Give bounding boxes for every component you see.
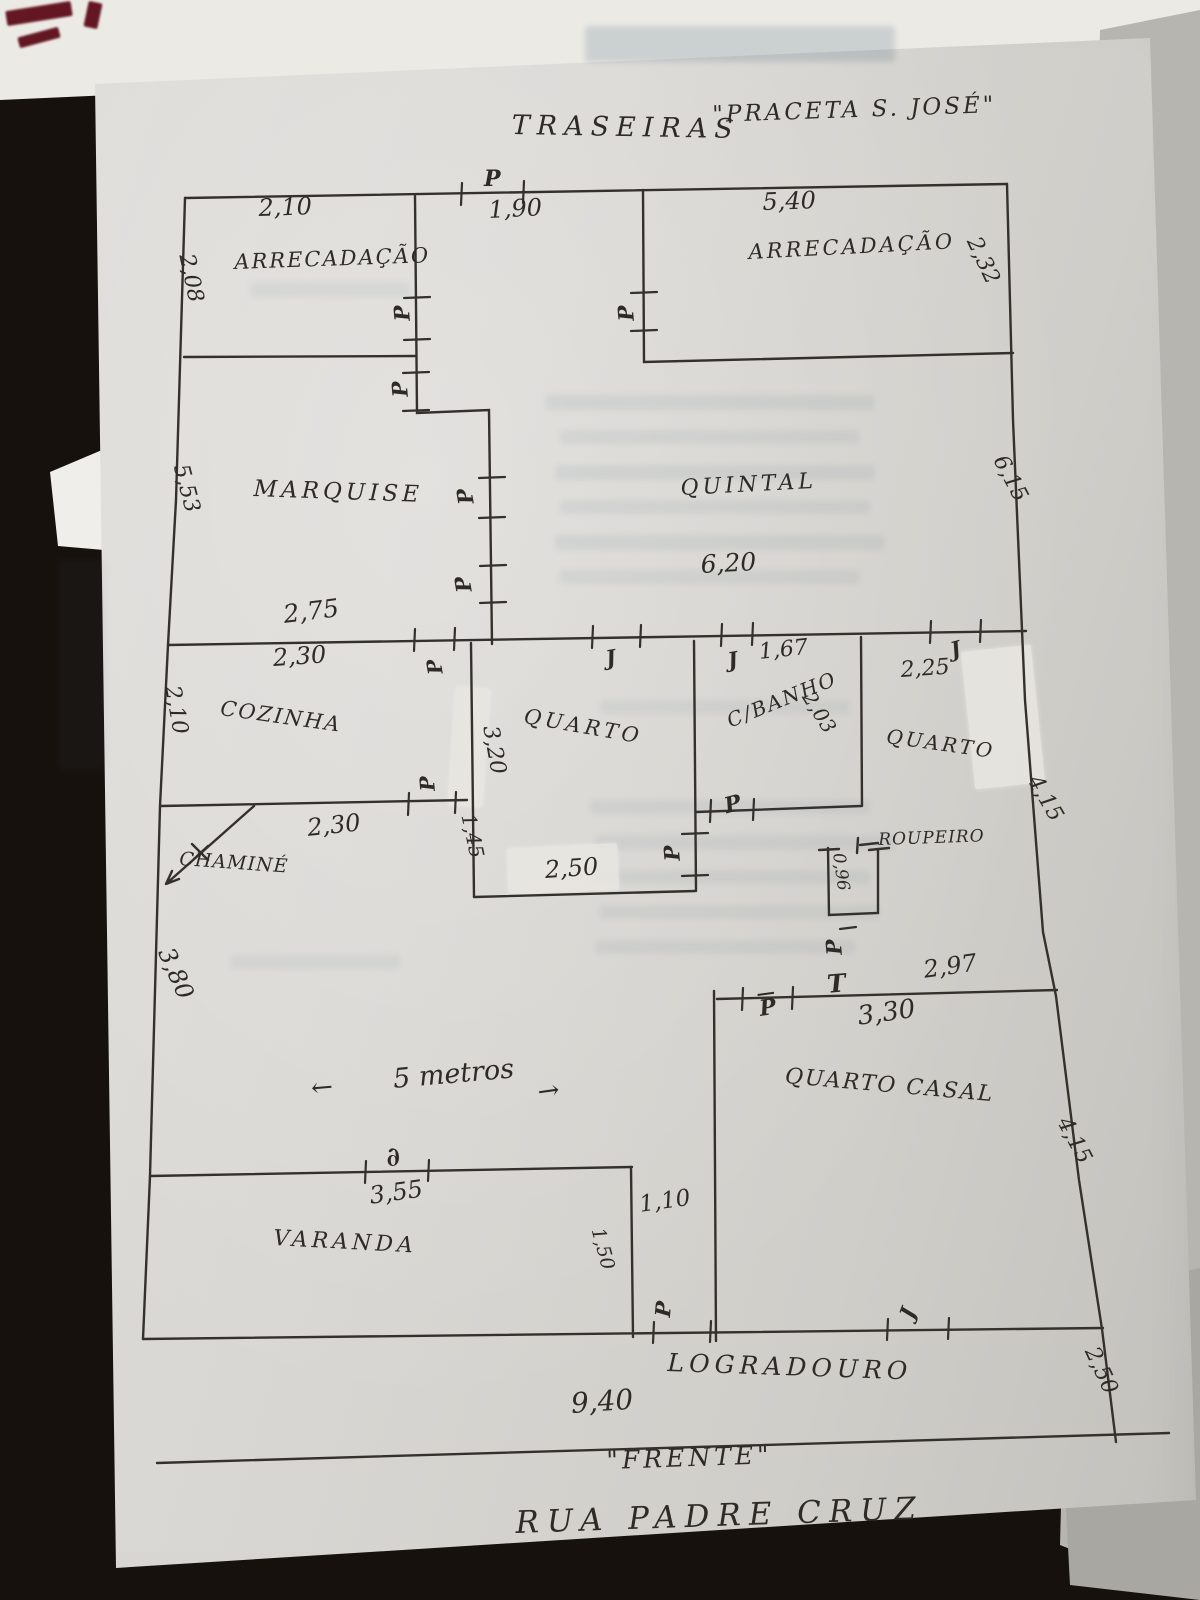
back-street-label: TRASEIRAS bbox=[512, 112, 740, 143]
tee-marker-vestibule: T bbox=[826, 970, 847, 997]
door-marker-gate: P bbox=[484, 168, 501, 190]
left-lot-line bbox=[143, 198, 185, 1339]
dim-marquise-width: 2,75 bbox=[282, 595, 340, 627]
photo-of-floor-plan: { "annotations": { "back_label": "TRASEI… bbox=[0, 0, 1200, 1600]
room-label-marquise: MARQUISE bbox=[253, 478, 423, 507]
door-marker-cozinha-bottom: P bbox=[417, 775, 438, 792]
dim-cozinha-width: 2,30 bbox=[272, 642, 327, 670]
arrecadacao-left-bottom-wall bbox=[184, 356, 415, 357]
dim-quintal-width: 6,20 bbox=[700, 549, 757, 577]
varanda-right-wall bbox=[631, 1167, 633, 1337]
scale-arrow-right-icon: → bbox=[536, 1077, 561, 1106]
door-marker-arr-left-2: P bbox=[389, 380, 411, 398]
door-marker-hall: P bbox=[758, 996, 777, 1020]
room-label-roupeiro: ROUPEIRO bbox=[878, 828, 985, 849]
cozinha-bottom-wall bbox=[161, 800, 467, 806]
banho-right-wall bbox=[861, 637, 862, 806]
quarto-bottom-wall bbox=[474, 891, 695, 897]
dim-arrecadacao-right-width: 5,40 bbox=[762, 188, 816, 214]
door-marker-vestibule: P bbox=[823, 938, 845, 956]
casal-left-wall bbox=[714, 991, 716, 1341]
door-marker-arr-right: P bbox=[615, 304, 637, 322]
house-front-wall bbox=[143, 1328, 1103, 1339]
dim-gate-width: 1,90 bbox=[488, 195, 543, 222]
door-marker-arr-left-1: P bbox=[391, 304, 413, 322]
dim-front-width: 9,40 bbox=[570, 1386, 634, 1418]
dim-banho-width: 1,67 bbox=[758, 637, 809, 664]
dim-sala-width: 2,30 bbox=[306, 810, 362, 839]
dim-quarto-width: 2,50 bbox=[544, 854, 599, 882]
banho-bottom-wall bbox=[696, 806, 861, 812]
quarto-right-wall bbox=[694, 641, 696, 891]
front-label: "FRENTE" bbox=[606, 1442, 773, 1473]
dim-arrecadacao-left-width: 2,10 bbox=[258, 194, 312, 220]
arrecadacao-right-walls bbox=[643, 190, 1013, 362]
floor-plan-drawing bbox=[0, 0, 1200, 1600]
dim-roupeiro-height: 0,96 bbox=[829, 852, 851, 892]
door-marker-quarto-side: P bbox=[661, 844, 683, 862]
door-marker-front: P bbox=[652, 1300, 674, 1318]
dim-varanda-width: 3,55 bbox=[368, 1177, 424, 1208]
scale-arrow-left-icon: ← bbox=[310, 1074, 334, 1102]
dim-casal-width: 3,30 bbox=[856, 996, 917, 1030]
dim-quarto-dir-width: 2,25 bbox=[900, 657, 950, 682]
dim-hall-width: 2,97 bbox=[922, 951, 978, 982]
